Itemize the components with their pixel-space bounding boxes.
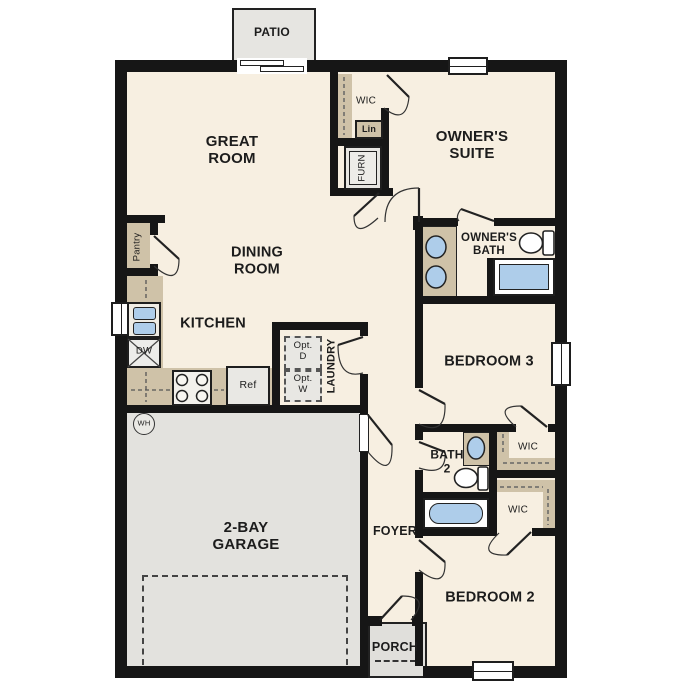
label-refrigerator: Ref — [240, 380, 257, 392]
room-label-laundry: LAUNDRY — [326, 339, 339, 394]
label-optional-washer: Opt. W — [294, 374, 313, 396]
wall — [415, 424, 516, 432]
owners-bath-shower — [493, 258, 555, 296]
wall — [423, 218, 458, 226]
room-label-dining-room: DINING ROOM — [231, 244, 283, 277]
room-label-owners-bath: OWNER'S BATH — [461, 232, 517, 258]
wall — [415, 432, 423, 440]
room-label-pantry: Pantry — [133, 233, 144, 262]
wall — [115, 60, 127, 302]
garage-door-dashed-outline — [142, 575, 348, 665]
room-label-patio: PATIO — [254, 26, 290, 40]
wall — [272, 322, 280, 413]
window — [472, 661, 514, 681]
wic-bed3-rod-bottom — [497, 458, 555, 470]
stove — [172, 370, 212, 406]
window — [551, 342, 571, 386]
wall — [150, 264, 158, 276]
bath2-tub — [423, 498, 489, 529]
owners-bath-vanity — [421, 226, 457, 298]
porch-step-dashed-line — [375, 660, 416, 662]
garage-entry-door-slab — [359, 414, 369, 452]
wall — [489, 478, 497, 528]
wall — [150, 223, 158, 235]
wic-top-rod — [338, 74, 352, 138]
wall — [360, 374, 368, 414]
floor-plan: PATIO GREAT ROOM WIC Lin FURN OWNER'S SU… — [0, 0, 687, 687]
label-optional-dryer: Opt. D — [294, 341, 313, 363]
wall — [115, 405, 368, 413]
wall — [115, 215, 165, 223]
room-label-wic-top: WIC — [356, 95, 376, 106]
room-label-garage: 2-BAY GARAGE — [212, 519, 279, 553]
room-label-bath2: BATH 2 — [430, 448, 463, 475]
wic-bed2-rod-right — [543, 480, 555, 528]
wall — [360, 616, 382, 626]
window — [448, 57, 488, 75]
room-label-wic-bed3: WIC — [518, 441, 538, 452]
wall — [115, 60, 237, 72]
wall — [272, 322, 368, 330]
wall — [307, 60, 448, 72]
wall — [489, 470, 567, 478]
room-label-bedroom3: BEDROOM 3 — [444, 354, 534, 371]
wall — [548, 424, 567, 432]
wall — [360, 322, 368, 336]
wall — [494, 218, 567, 226]
bath2-vanity — [463, 432, 491, 466]
wall — [412, 616, 423, 626]
wall — [532, 528, 567, 536]
label-water-heater: WH — [138, 420, 151, 429]
wall — [415, 304, 423, 388]
kitchen-sink-unit — [127, 302, 161, 338]
patio-sliding-door — [237, 58, 307, 74]
room-label-kitchen: KITCHEN — [180, 316, 246, 333]
wall — [330, 72, 338, 194]
label-dishwasher: DW — [136, 347, 152, 358]
wall — [330, 138, 389, 146]
wall — [415, 296, 567, 304]
wall — [423, 666, 472, 678]
wall — [115, 336, 127, 678]
wall — [489, 432, 497, 470]
room-label-bedroom2: BEDROOM 2 — [445, 590, 535, 607]
room-label-foyer: FOYER — [373, 524, 417, 538]
wall — [415, 218, 423, 304]
room-label-lin: Lin — [362, 124, 376, 134]
room-label-wic-bed2: WIC — [508, 504, 528, 515]
room-label-furn: FURN — [358, 154, 369, 181]
wall — [115, 666, 368, 678]
room-label-porch: PORCH — [372, 640, 418, 654]
wall — [360, 452, 368, 666]
wall — [514, 666, 567, 678]
wall — [415, 528, 497, 536]
room-label-great-room: GREAT ROOM — [206, 133, 258, 167]
room-label-owners-suite: OWNER'S SUITE — [436, 128, 508, 162]
